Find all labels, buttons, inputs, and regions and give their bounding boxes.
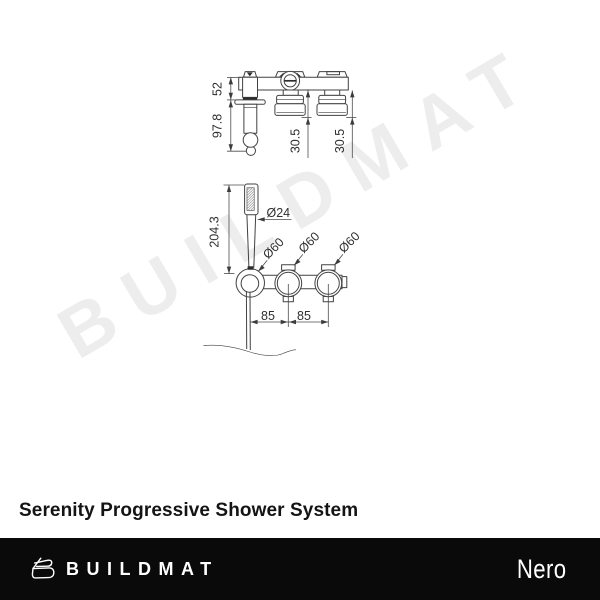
dim-label-85-a: 85 [261,309,275,323]
footer-bar: BUILDMAT Nero [0,538,600,600]
nero-brand-logo: Nero [517,554,567,585]
front-view-dimensions: 204.3 Ø24 Ø60 Ø60 Ø60 85 85 [208,185,363,327]
dim-label-dia60-2: Ø60 [296,229,323,256]
diverter-trim-side [317,90,347,115]
dim-label-85-b: 85 [297,309,311,323]
dim-label-204-3: 204.3 [208,216,222,247]
buildmat-logo-icon [30,556,57,582]
dim-label-dia60-1: Ø60 [260,235,287,262]
dim-label-dia60-3: Ø60 [336,229,363,256]
dim-label-52: 52 [211,82,225,96]
dim-label-30-5-a: 30.5 [289,129,303,153]
dim-label-30-5-b: 30.5 [333,129,347,153]
dim-label-97-8: 97.8 [211,114,225,138]
product-title: Serenity Progressive Shower System [19,500,358,522]
dim-label-dia24: Ø24 [267,206,291,220]
footer-brand-text: BUILDMAT [66,559,219,580]
